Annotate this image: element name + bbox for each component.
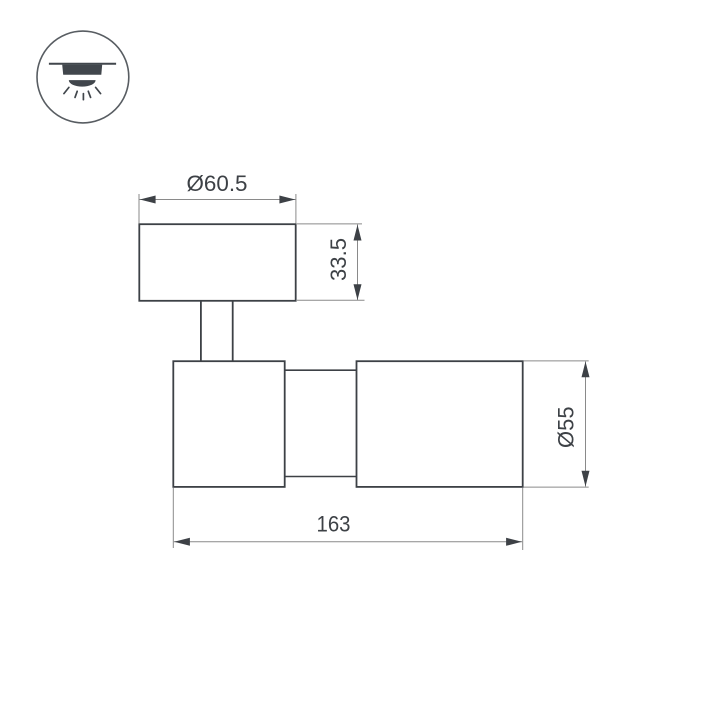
svg-text:163: 163 (317, 512, 351, 537)
svg-text:Ø55: Ø55 (554, 406, 579, 448)
svg-text:33.5: 33.5 (326, 238, 351, 281)
svg-text:Ø60.5: Ø60.5 (187, 171, 248, 196)
